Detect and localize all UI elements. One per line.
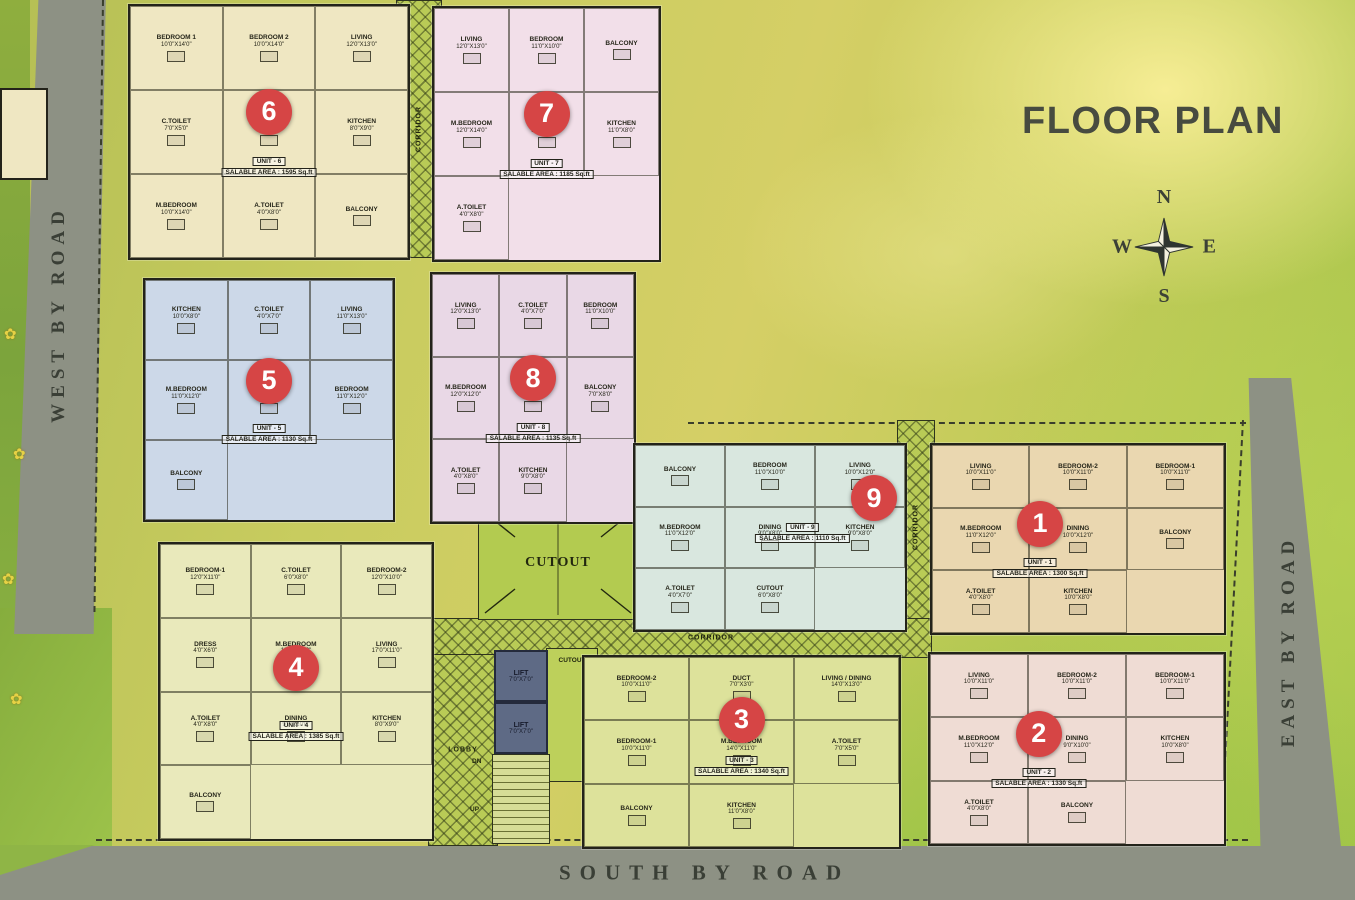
room-dims: 12'0"X14'0" [456, 128, 487, 135]
room-name: KITCHEN [347, 118, 376, 125]
furniture-icon [1069, 604, 1087, 615]
room-dims: 4'0"X8'0" [454, 474, 478, 481]
room-m-bedroom: M.BEDROOM11'0"X12'0" [635, 507, 725, 569]
unit-2-rooms: LIVING10'0"X11'0"BEDROOM-210'0"X11'0"BED… [930, 654, 1224, 844]
room-c-toilet: C.TOILET4'0"X7'0" [228, 280, 311, 360]
room-dims: 11'0"X10'0" [755, 470, 785, 477]
room-name: LIVING [376, 641, 398, 648]
room-dims: 10'0"X14'0" [254, 42, 285, 49]
room-a-toilet: A.TOILET4'0"X7'0" [635, 568, 725, 630]
room-name: BEDROOM-2 [1057, 672, 1097, 679]
room-dims: 10'0"X11'0" [1063, 470, 1093, 477]
room-name: BEDROOM-2 [367, 567, 407, 574]
furniture-icon [196, 731, 214, 742]
room-name: KITCHEN [1064, 588, 1093, 595]
furniture-icon [177, 479, 195, 490]
unit-2: LIVING10'0"X11'0"BEDROOM-210'0"X11'0"BED… [928, 652, 1226, 846]
room-bedroom-1: BEDROOM-110'0"X11'0" [1127, 445, 1224, 508]
room-dims: 12'0"X13'0" [456, 44, 487, 51]
room-kitchen: KITCHEN8'0"X9'0" [341, 692, 432, 766]
room-name: BEDROOM [583, 302, 617, 309]
room-kitchen: KITCHEN11'0"X8'0" [689, 784, 794, 847]
room-dims: 10'0"X11'0" [1160, 679, 1190, 686]
unit-meta: UNIT - 7 SALABLE AREA : 1185 Sq.ft [499, 159, 594, 179]
room-dims: 10'0"X14'0" [161, 210, 192, 217]
room-dims: 4'0"X7'0" [668, 593, 692, 600]
room-dims: 9'0"X8'0" [848, 531, 872, 538]
furniture-icon [628, 691, 646, 702]
compass-east-label: E [1203, 236, 1216, 259]
unit-meta: UNIT - 9 SALABLE AREA : 1110 Sq.ft [755, 523, 849, 543]
room-bedroom: BEDROOM11'0"X10'0" [509, 8, 584, 92]
furniture-icon [463, 221, 481, 232]
room-cutout: CUTOUT6'0"X8'0" [725, 568, 815, 630]
room-dims: 11'0"X10'0" [585, 309, 615, 316]
furniture-icon [761, 602, 779, 613]
unit-meta: UNIT - 2 SALABLE AREA : 1330 Sq.ft [991, 768, 1086, 788]
room-name: M.BEDROOM [659, 524, 700, 531]
room-name: LIVING [341, 306, 363, 313]
furniture-icon [972, 542, 990, 553]
room-c-toilet: C.TOILET4'0"X7'0" [499, 274, 566, 357]
furniture-icon [167, 51, 185, 62]
unit-6: BEDROOM 110'0"X14'0"BEDROOM 210'0"X14'0"… [128, 4, 410, 260]
furniture-icon [260, 323, 278, 334]
room-m-bedroom: M.BEDROOM12'0"X14'0" [434, 92, 509, 176]
room-dims: 10'0"X11'0" [966, 470, 996, 477]
furniture-icon [524, 318, 542, 329]
furniture-icon [733, 818, 751, 829]
unit-number-label: UNIT - 1 [1024, 558, 1057, 567]
room-bedroom-1: BEDROOM-110'0"X11'0" [1126, 654, 1224, 717]
room-name: KITCHEN [846, 524, 875, 531]
furniture-icon [524, 401, 542, 412]
furniture-icon [524, 483, 542, 494]
furniture-icon [463, 137, 481, 148]
furniture-icon [628, 815, 646, 826]
room-dims: 9'0"X10'0" [1063, 743, 1090, 750]
furniture-icon [353, 135, 371, 146]
room-name: LIVING [849, 462, 871, 469]
compass-rose-icon [1134, 217, 1194, 277]
furniture-icon [353, 215, 371, 226]
room-living: LIVING12'0"X13'0" [434, 8, 509, 92]
room-name: BALCONY [170, 470, 202, 477]
unit-area-label: SALABLE AREA : 1330 Sq.ft [991, 779, 1086, 788]
corridor-east-label: CORRIDOR [913, 504, 920, 550]
flower-icon: ✿ [4, 325, 17, 343]
stairs-down-label: DN [472, 758, 481, 765]
compass-north-label: N [1157, 186, 1171, 209]
room-bedroom: BEDROOM11'0"X10'0" [567, 274, 634, 357]
road-west-label: WEST BY ROAD [48, 205, 70, 423]
room-dims: 11'0"X8'0" [608, 128, 635, 135]
unit-9: BALCONYBEDROOM11'0"X10'0"LIVING10'0"X12'… [633, 443, 907, 632]
furniture-icon [538, 137, 556, 148]
room-name: LIVING [968, 672, 990, 679]
furniture-icon [260, 51, 278, 62]
furniture-icon [761, 479, 779, 490]
room-name: M.BEDROOM [166, 386, 207, 393]
room-name: BEDROOM-1 [617, 738, 657, 745]
cutout-main-label: CUTOUT [525, 555, 591, 571]
room-name: C.TOILET [254, 306, 284, 313]
room-name: C.TOILET [162, 118, 192, 125]
room-name: BEDROOM-1 [1155, 463, 1195, 470]
stairs-up-label: UP [470, 806, 479, 813]
unit-area-label: SALABLE AREA : 1185 Sq.ft [499, 170, 594, 179]
furniture-icon [343, 403, 361, 414]
room-dims: 14'0"X11'0" [726, 746, 756, 753]
road-south-label: SOUTH BY ROAD [559, 861, 850, 886]
room-a-toilet: A.TOILET4'0"X8'0" [932, 570, 1029, 633]
room-name: DRESS [194, 641, 216, 648]
room-dims: 8'0"X9'0" [375, 722, 399, 729]
furniture-icon [196, 657, 214, 668]
furniture-icon [457, 483, 475, 494]
room-name: A.TOILET [964, 799, 994, 806]
furniture-icon [591, 401, 609, 412]
room-a-toilet: A.TOILET7'0"X5'0" [794, 720, 899, 783]
room-name: BEDROOM 1 [157, 34, 196, 41]
room-name: A.TOILET [254, 202, 284, 209]
furniture-icon [287, 584, 305, 595]
room-kitchen: KITCHEN9'0"X8'0" [499, 439, 566, 522]
unit-1-rooms: LIVING10'0"X11'0"BEDROOM-210'0"X11'0"BED… [932, 445, 1224, 633]
flower-icon: ✿ [2, 570, 15, 588]
unit-4-rooms: BEDROOM-112'0"X11'0"C.TOILET6'0"X8'0"BED… [160, 544, 432, 839]
room-name: A.TOILET [665, 585, 695, 592]
room-name: BEDROOM-2 [617, 675, 657, 682]
room-kitchen: KITCHEN10'0"X8'0" [1029, 570, 1126, 633]
room-dims: 7'0"X5'0" [835, 746, 859, 753]
room-dims: 14'0"X13'0" [831, 682, 862, 689]
unit-badge: 4 [273, 645, 319, 691]
furniture-icon [970, 688, 988, 699]
room-name: BALCONY [346, 206, 378, 213]
room-name: A.TOILET [966, 588, 996, 595]
furniture-icon [196, 584, 214, 595]
room-m-bedroom: M.BEDROOM11'0"X12'0" [145, 360, 228, 440]
furniture-icon [613, 49, 631, 60]
corridor-south-label: CORRIDOR [688, 635, 734, 642]
furniture-icon [671, 602, 689, 613]
room-name: LIVING [970, 463, 992, 470]
lift-1: LIFT 7'0"X7'0" [494, 650, 548, 702]
room-dims: 10'0"X14'0" [161, 42, 192, 49]
unit-badge: 5 [246, 358, 292, 404]
room-a-toilet: A.TOILET4'0"X8'0" [432, 439, 499, 522]
unit-badge: 3 [719, 697, 765, 743]
furniture-icon [177, 323, 195, 334]
room-dims: 10'0"X11'0" [964, 679, 994, 686]
room-dims: 4'0"X8'0" [460, 212, 484, 219]
room-dims: 4'0"X8'0" [969, 595, 993, 602]
room-name: KITCHEN [172, 306, 201, 313]
room-dims: 12'0"X10'0" [371, 575, 402, 582]
furniture-icon [378, 731, 396, 742]
furniture-icon [378, 657, 396, 668]
furniture-icon [353, 51, 371, 62]
room-dims: 10'0"X8'0" [1064, 595, 1091, 602]
room-dims: 6'0"X8'0" [284, 575, 308, 582]
room-bedroom: BEDROOM11'0"X10'0" [725, 445, 815, 507]
room-name: BEDROOM-1 [1155, 672, 1195, 679]
room-dims: 10'0"X8'0" [173, 314, 200, 321]
furniture-icon [838, 755, 856, 766]
structure-fragment [0, 88, 48, 180]
room-kitchen: KITCHEN10'0"X8'0" [145, 280, 228, 360]
unit-8: LIVING12'0"X13'0"C.TOILET4'0"X7'0"BEDROO… [430, 272, 636, 524]
room-name: BEDROOM [335, 386, 369, 393]
room-living: LIVING12'0"X13'0" [432, 274, 499, 357]
room-living: LIVING11'0"X13'0" [310, 280, 393, 360]
unit-7: LIVING12'0"X13'0"BEDROOM11'0"X10'0"BALCO… [432, 6, 661, 262]
room-dims: 11'0"X8'0" [728, 809, 755, 816]
unit-meta: UNIT - 8 SALABLE AREA : 1135 Sq.ft [486, 423, 581, 443]
lift-1-label: LIFT [514, 670, 529, 677]
room-name: A.TOILET [832, 738, 862, 745]
furniture-icon [838, 691, 856, 702]
room-name: M.BEDROOM [156, 202, 197, 209]
furniture-icon [177, 403, 195, 414]
room-name: C.TOILET [518, 302, 548, 309]
room-a-toilet: A.TOILET4'0"X8'0" [930, 781, 1028, 844]
lift-1-dims: 7'0"X7'0" [509, 677, 533, 683]
room-dims: 9'0"X8'0" [521, 474, 545, 481]
page-title: FLOOR PLAN [1022, 100, 1284, 143]
room-name: BEDROOM-1 [185, 567, 225, 574]
room-dims: 4'0"X8'0" [193, 722, 217, 729]
furniture-icon [1068, 688, 1086, 699]
room-balcony: BALCONY [145, 440, 228, 520]
unit-badge: 1 [1017, 501, 1063, 547]
furniture-icon [671, 475, 689, 486]
room-name: KITCHEN [607, 120, 636, 127]
room-living: LIVING10'0"X11'0" [932, 445, 1029, 508]
unit-5: KITCHEN10'0"X8'0"C.TOILET4'0"X7'0"LIVING… [143, 278, 395, 522]
room-dims: 6'0"X8'0" [758, 593, 782, 600]
furniture-icon [671, 540, 689, 551]
boundary-line-top [688, 422, 1246, 424]
room-a-toilet: A.TOILET4'0"X8'0" [160, 692, 251, 766]
road-south: SOUTH BY ROAD [0, 846, 1355, 900]
room-dims: 4'0"X6'0" [193, 648, 217, 655]
furniture-icon [343, 323, 361, 334]
road-east-label: EAST BY ROAD [1278, 534, 1300, 746]
room-living: LIVING12'0"X13'0" [315, 6, 408, 90]
unit-number-label: UNIT - 4 [280, 721, 313, 730]
room-name: KITCHEN [519, 467, 548, 474]
unit-area-label: SALABLE AREA : 1135 Sq.ft [486, 434, 581, 443]
furniture-icon [260, 219, 278, 230]
room-name: KITCHEN [727, 802, 756, 809]
furniture-icon [1068, 752, 1086, 763]
room-dims: 12'0"X12'0" [450, 392, 481, 399]
room-dims: 11'0"X12'0" [665, 531, 695, 538]
room-balcony: BALCONY [1127, 508, 1224, 571]
furniture-icon [167, 219, 185, 230]
room-name: LIVING / DINING [822, 675, 872, 682]
room-name: A.TOILET [191, 715, 221, 722]
room-dims: 4'0"X7'0" [521, 309, 545, 316]
room-name: BEDROOM 2 [249, 34, 288, 41]
room-name: M.BEDROOM [445, 384, 486, 391]
room-bedroom-2: BEDROOM-212'0"X10'0" [341, 544, 432, 618]
room-name: BEDROOM [753, 462, 787, 469]
room-name: C.TOILET [281, 567, 311, 574]
room-dims: 11'0"X12'0" [966, 533, 996, 540]
unit-badge: 6 [246, 89, 292, 135]
room-name: LIVING [455, 302, 477, 309]
furniture-icon [628, 755, 646, 766]
room-balcony: BALCONY [1028, 781, 1126, 844]
furniture-icon [1069, 542, 1087, 553]
room-dims: 10'0"X11'0" [1160, 470, 1190, 477]
furniture-icon [463, 53, 481, 64]
room-m-bedroom: M.BEDROOM10'0"X14'0" [130, 174, 223, 258]
room-c-toilet: C.TOILET7'0"X5'0" [130, 90, 223, 174]
room-c-toilet: C.TOILET6'0"X8'0" [251, 544, 342, 618]
lift-2-dims: 7'0"X7'0" [509, 729, 533, 735]
unit-badge: 7 [524, 91, 570, 137]
unit-3: BEDROOM-210'0"X11'0"DUCT7'0"X3'0"LIVING … [582, 655, 901, 849]
room-kitchen: KITCHEN10'0"X8'0" [1126, 717, 1224, 780]
room-name: BALCONY [1061, 802, 1093, 809]
room-name: M.BEDROOM [451, 120, 492, 127]
room-name: M.BEDROOM [958, 735, 999, 742]
room-name: BALCONY [584, 384, 616, 391]
room-dims: 4'0"X8'0" [967, 806, 991, 813]
room-bedroom-1: BEDROOM-112'0"X11'0" [160, 544, 251, 618]
room-living: LIVING17'0"X11'0" [341, 618, 432, 692]
room-balcony: BALCONY [584, 784, 689, 847]
room-dims: 10'0"X11'0" [1062, 679, 1092, 686]
room-dims: 7'0"X5'0" [164, 126, 188, 133]
furniture-icon [196, 801, 214, 812]
unit-number-label: UNIT - 3 [725, 756, 758, 765]
room-name: DUCT [732, 675, 750, 682]
unit-area-label: SALABLE AREA : 1300 Sq.ft [993, 569, 1088, 578]
room-dims: 7'0"X3'0" [730, 682, 754, 689]
room-dims: 11'0"X10'0" [531, 44, 561, 51]
room-name: DINING [1067, 525, 1090, 532]
room-dims: 12'0"X13'0" [346, 42, 377, 49]
room-a-toilet: A.TOILET4'0"X8'0" [223, 174, 316, 258]
unit-3-rooms: BEDROOM-210'0"X11'0"DUCT7'0"X3'0"LIVING … [584, 657, 899, 847]
furniture-icon [378, 584, 396, 595]
room-name: BALCONY [664, 466, 696, 473]
unit-number-label: UNIT - 7 [530, 159, 563, 168]
room-name: LIVING [351, 34, 373, 41]
furniture-icon [970, 815, 988, 826]
furniture-icon [1069, 479, 1087, 490]
unit-meta: UNIT - 1 SALABLE AREA : 1300 Sq.ft [993, 558, 1088, 578]
lobby: LOBBY [428, 654, 498, 846]
room-dims: 17'0"X11'0" [372, 648, 402, 655]
room-a-toilet: A.TOILET4'0"X8'0" [434, 176, 509, 260]
room-dims: 10'0"X12'0" [1063, 533, 1094, 540]
compass-west-label: W [1112, 236, 1132, 259]
corridor-top-label: CORRIDOR [416, 106, 423, 152]
room-balcony: BALCONY [315, 174, 408, 258]
room-bedroom-1: BEDROOM 110'0"X14'0" [130, 6, 223, 90]
room-bedroom-2: BEDROOM 210'0"X14'0" [223, 6, 316, 90]
staircase [492, 754, 550, 844]
unit-area-label: SALABLE AREA : 1110 Sq.ft [755, 534, 849, 543]
unit-area-label: SALABLE AREA : 1595 Sq.ft [222, 168, 317, 177]
room-dims: 12'0"X11'0" [190, 575, 220, 582]
room-name: M.BEDROOM [960, 525, 1001, 532]
unit-number-label: UNIT - 9 [786, 523, 819, 532]
room-living-dining: LIVING / DINING14'0"X13'0" [794, 657, 899, 720]
furniture-icon [970, 752, 988, 763]
room-name: BEDROOM-2 [1058, 463, 1098, 470]
compass: N S W E [1118, 186, 1210, 308]
furniture-icon [1166, 479, 1184, 490]
room-bedroom-2: BEDROOM-210'0"X11'0" [1029, 445, 1126, 508]
lift-2-label: LIFT [514, 722, 529, 729]
room-dress: DRESS4'0"X6'0" [160, 618, 251, 692]
room-name: BALCONY [605, 40, 637, 47]
room-dims: 4'0"X8'0" [257, 210, 281, 217]
room-dims: 10'0"X8'0" [1161, 743, 1188, 750]
unit-number-label: UNIT - 5 [253, 424, 286, 433]
furniture-icon [972, 479, 990, 490]
furniture-icon [1166, 688, 1184, 699]
room-balcony: BALCONY [584, 8, 659, 92]
furniture-icon [457, 401, 475, 412]
furniture-icon [972, 604, 990, 615]
flower-icon: ✿ [13, 445, 26, 463]
compass-south-label: S [1158, 285, 1169, 308]
furniture-icon [851, 540, 869, 551]
room-bedroom: BEDROOM11'0"X12'0" [310, 360, 393, 440]
room-name: KITCHEN [372, 715, 401, 722]
grass-area-bottom-left [0, 608, 112, 848]
room-name: LIVING [461, 36, 483, 43]
unit-area-label: SALABLE AREA : 1340 Sq.ft [694, 767, 789, 776]
unit-number-label: UNIT - 6 [253, 157, 286, 166]
unit-meta: UNIT - 6 SALABLE AREA : 1595 Sq.ft [222, 157, 317, 177]
room-name: DINING [1066, 735, 1089, 742]
unit-area-label: SALABLE AREA : 1130 Sq.ft [222, 435, 317, 444]
unit-meta: UNIT - 4 SALABLE AREA : 1385 Sq.ft [249, 721, 344, 741]
lobby-label: LOBBY [448, 747, 478, 754]
unit-badge: 9 [851, 475, 897, 521]
furniture-icon [1166, 538, 1184, 549]
room-dims: 10'0"X11'0" [621, 746, 651, 753]
furniture-icon [1068, 812, 1086, 823]
room-name: CUTOUT [757, 585, 784, 592]
unit-meta: UNIT - 3 SALABLE AREA : 1340 Sq.ft [694, 756, 789, 776]
room-dims: 8'0"X9'0" [350, 126, 374, 133]
room-name: A.TOILET [457, 204, 487, 211]
room-bedroom-2: BEDROOM-210'0"X11'0" [1028, 654, 1126, 717]
furniture-icon [591, 318, 609, 329]
room-bedroom-2: BEDROOM-210'0"X11'0" [584, 657, 689, 720]
unit-4: BEDROOM-112'0"X11'0"C.TOILET6'0"X8'0"BED… [158, 542, 434, 841]
room-name: BALCONY [620, 805, 652, 812]
furniture-icon [457, 318, 475, 329]
room-dims: 11'0"X12'0" [964, 743, 994, 750]
room-kitchen: KITCHEN11'0"X8'0" [584, 92, 659, 176]
unit-number-label: UNIT - 8 [517, 423, 550, 432]
unit-number-label: UNIT - 2 [1022, 768, 1055, 777]
room-name: BEDROOM [530, 36, 564, 43]
room-balcony: BALCONY [160, 765, 251, 839]
room-dims: 7'0"X8'0" [588, 392, 612, 399]
